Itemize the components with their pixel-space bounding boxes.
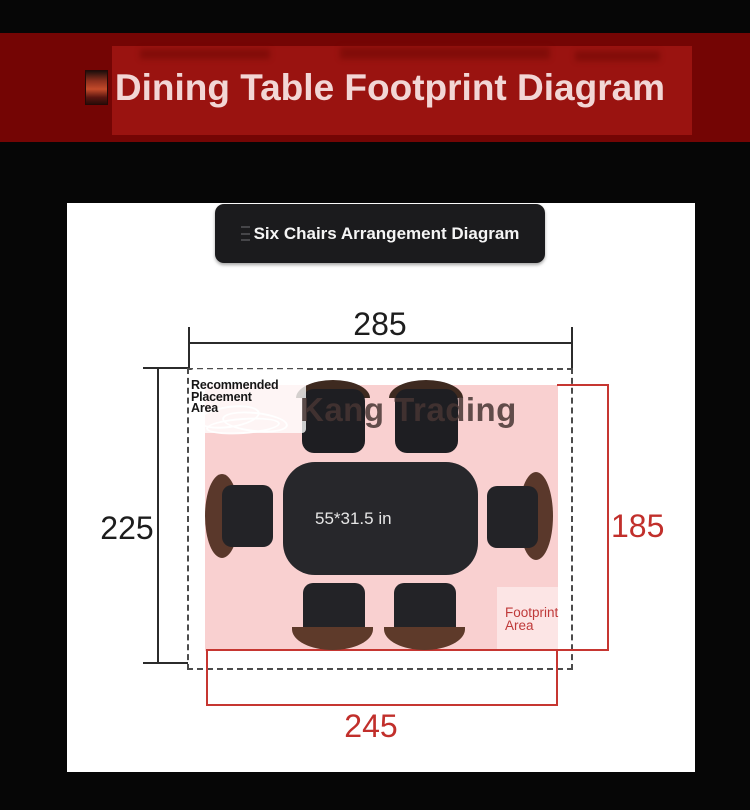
list-icon <box>241 226 250 241</box>
dim-right-line-top <box>557 384 609 386</box>
dim-bottom-tick-right <box>556 649 558 706</box>
page-title: Dining Table Footprint Diagram <box>115 67 665 109</box>
dim-top-value: 285 <box>328 306 432 343</box>
subtitle-box: Six Chairs Arrangement Diagram <box>215 204 545 263</box>
banner-thumbnail-icon <box>85 70 108 105</box>
dim-left-tick-bottom <box>143 662 188 664</box>
watermark-text: Kang Trading <box>300 391 517 429</box>
dim-right-line-bottom <box>557 649 609 651</box>
dim-top-tick-right <box>571 327 573 368</box>
dining-table-top: 55*31.5 in <box>283 462 478 575</box>
subtitle-label: Six Chairs Arrangement Diagram <box>254 224 520 244</box>
recommended-area-label: Recommended Placement Area <box>191 380 278 415</box>
chair-seat-left <box>222 485 273 547</box>
dim-left-tick-top <box>143 367 188 369</box>
footprint-area-label: Footprint Area <box>505 606 558 632</box>
header-banner: Dining Table Footprint Diagram <box>0 33 750 142</box>
banner-title-row: Dining Table Footprint Diagram <box>0 33 750 142</box>
dim-right-line <box>607 384 609 651</box>
footprint-bottom-edge <box>206 649 558 651</box>
chair-seat-right <box>487 486 538 548</box>
dim-bottom-value: 245 <box>321 708 421 745</box>
dim-top-tick-left <box>188 327 190 368</box>
page: { "banner": { "title": "Dining Table Foo… <box>0 0 750 810</box>
dim-bottom-tick-left <box>206 649 208 706</box>
dim-right-value: 185 <box>611 508 671 545</box>
table-size-label: 55*31.5 in <box>315 462 392 575</box>
dim-bottom-line <box>206 704 558 706</box>
dim-left-value: 225 <box>92 510 162 547</box>
